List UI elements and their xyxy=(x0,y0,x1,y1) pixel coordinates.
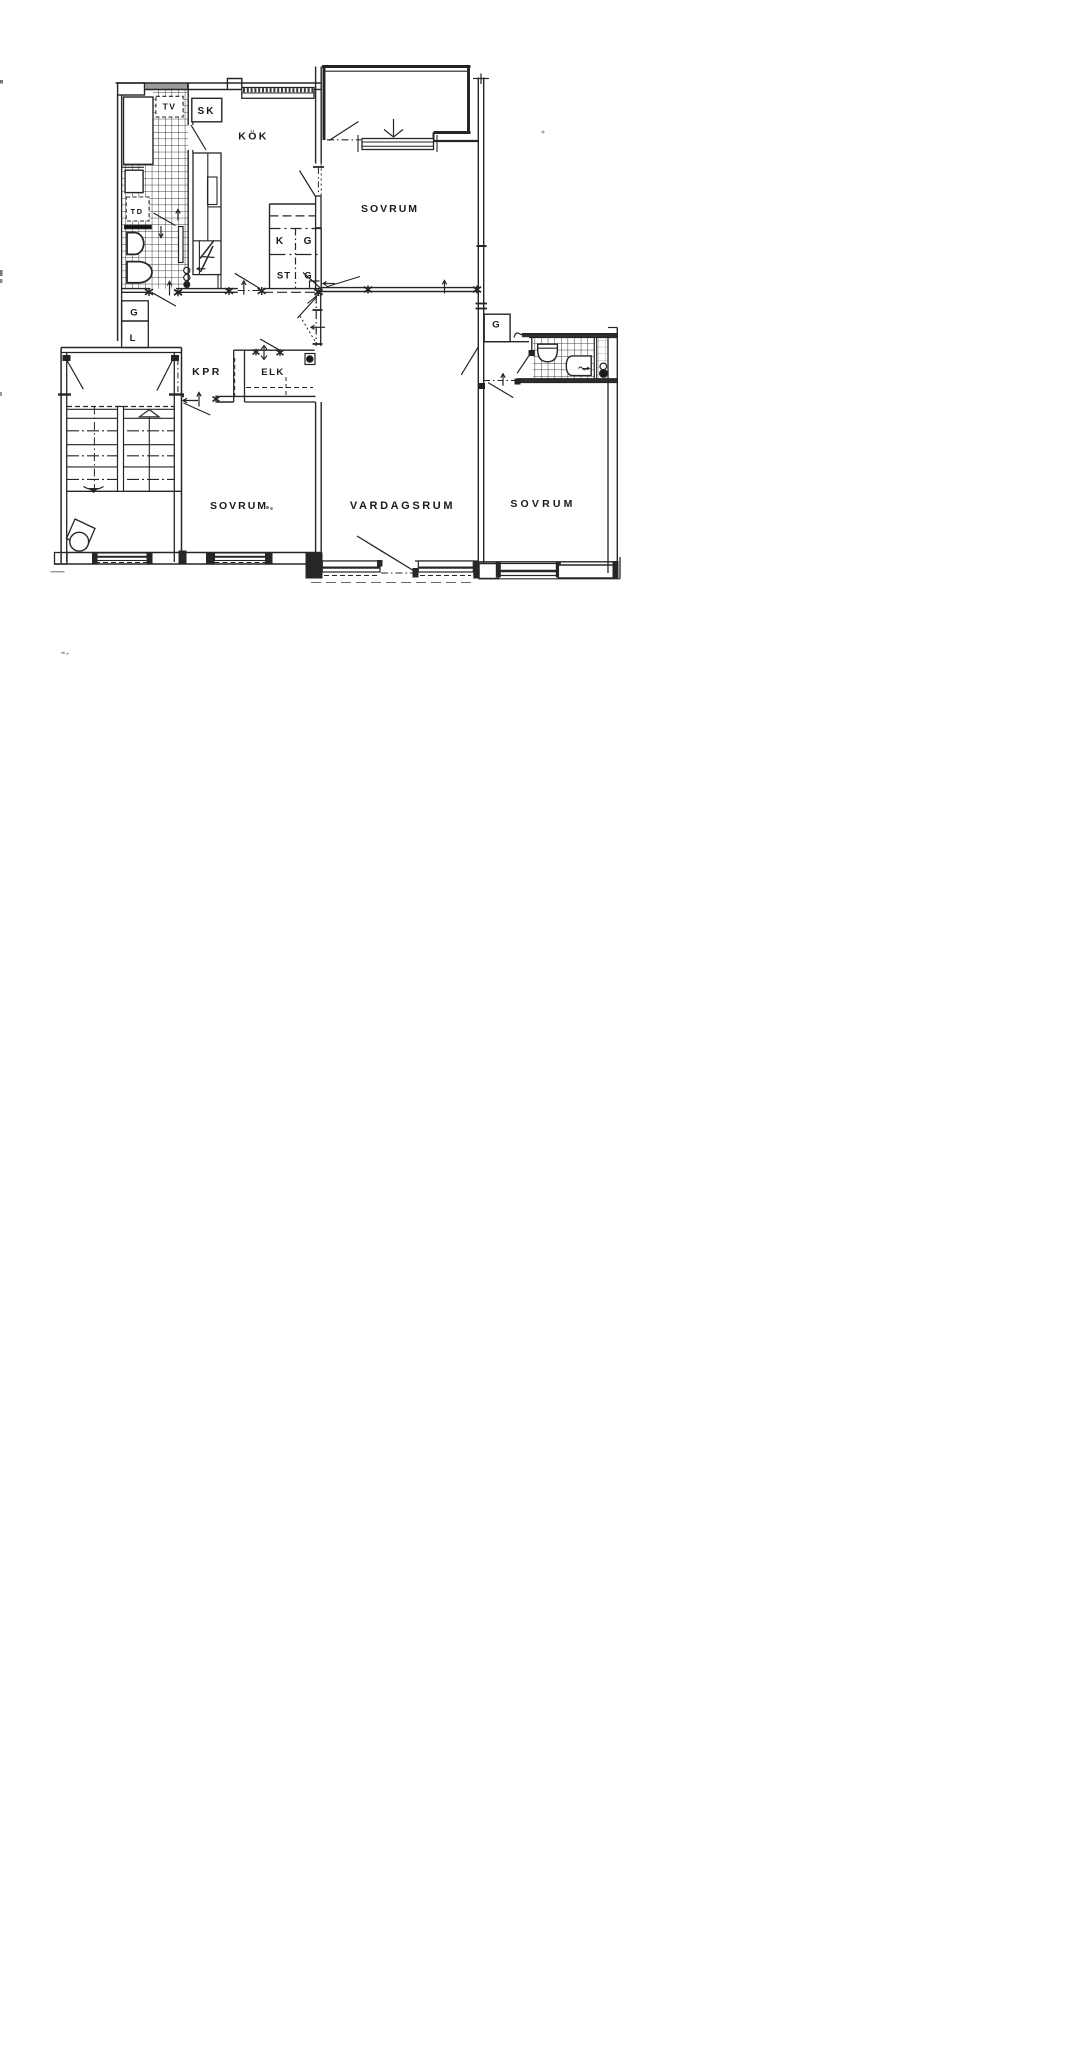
svg-text:SOVRUM: SOVRUM xyxy=(510,498,575,510)
svg-text:G: G xyxy=(130,308,138,319)
svg-text:KPR: KPR xyxy=(192,366,222,378)
svg-text:L: L xyxy=(130,333,137,344)
svg-text:SOVRUM: SOVRUM xyxy=(210,500,268,512)
svg-text:TD: TD xyxy=(131,207,144,216)
svg-text:K: K xyxy=(276,236,284,247)
svg-text:G: G xyxy=(304,236,313,247)
svg-text:G: G xyxy=(492,320,500,331)
svg-text:SK: SK xyxy=(198,106,216,117)
svg-text:KÖK: KÖK xyxy=(238,130,269,143)
svg-text:SOVRUM: SOVRUM xyxy=(361,203,419,215)
svg-text:ELK: ELK xyxy=(261,367,285,378)
svg-text:VARDAGSRUM: VARDAGSRUM xyxy=(350,500,455,512)
svg-text:ST: ST xyxy=(277,271,291,282)
svg-text:TV: TV xyxy=(163,102,177,112)
